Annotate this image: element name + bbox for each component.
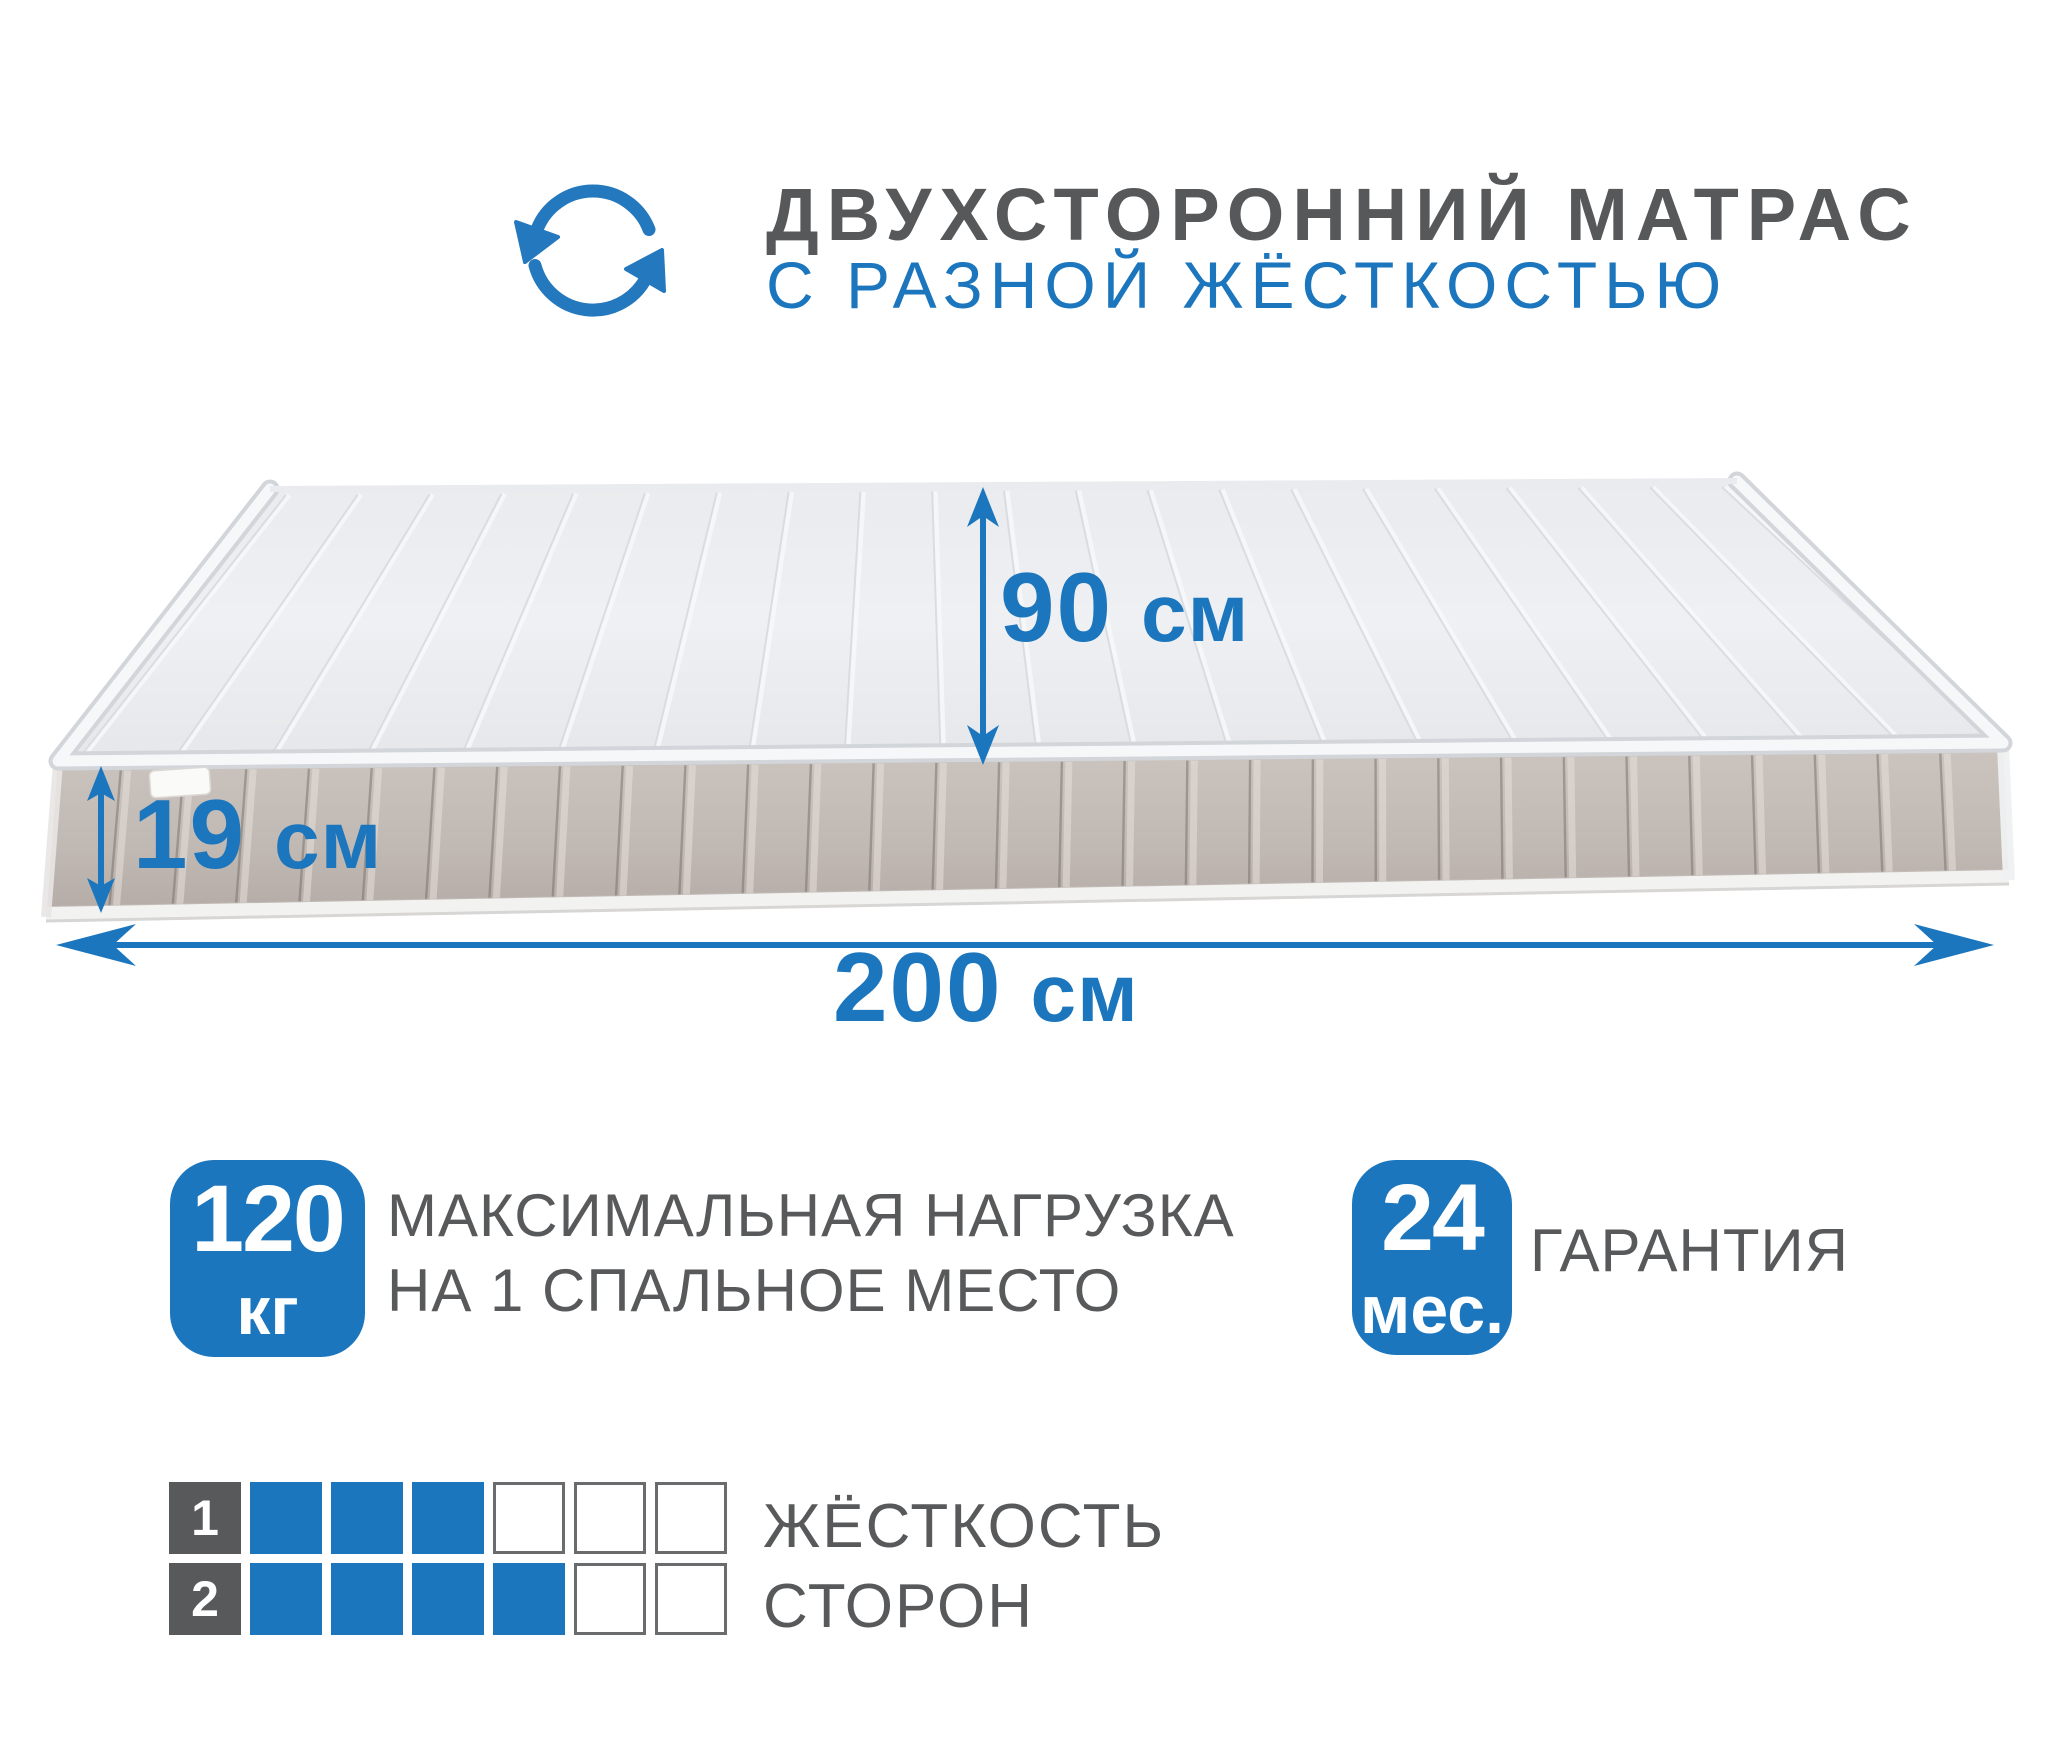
- firmness-side-number: 2: [169, 1563, 241, 1635]
- firmness-cells: [250, 1482, 727, 1554]
- length-label: 200 см: [833, 938, 1139, 1036]
- firmness-cell-empty: [655, 1482, 727, 1554]
- width-value: 90: [1000, 558, 1113, 656]
- firmness-cell-filled: [412, 1482, 484, 1554]
- warranty-label: ГАРАНТИЯ: [1530, 1221, 1849, 1281]
- firmness-cell-filled: [250, 1482, 322, 1554]
- firmness-cell-empty: [574, 1563, 646, 1635]
- firmness-cell-filled: [250, 1563, 322, 1635]
- rotate-arrows-icon: [505, 172, 685, 332]
- max-load-value: 120: [191, 1172, 344, 1267]
- firmness-cell-filled: [331, 1563, 403, 1635]
- firmness-cell-empty: [574, 1482, 646, 1554]
- firmness-cell-filled: [331, 1482, 403, 1554]
- firmness-cell-empty: [493, 1482, 565, 1554]
- width-label: 90 см: [1000, 558, 1249, 656]
- height-unit: см: [274, 800, 382, 882]
- firmness-row-side-2: 2: [169, 1563, 727, 1635]
- max-load-description-line2: НА 1 СПАЛЬНОЕ МЕСТО: [387, 1261, 1121, 1321]
- max-load-badge: 120 кг: [170, 1160, 365, 1357]
- length-value: 200: [833, 938, 1003, 1036]
- firmness-cell-empty: [655, 1563, 727, 1635]
- firmness-row-side-1: 1: [169, 1482, 727, 1554]
- firmness-label-line2: СТОРОН: [763, 1576, 1034, 1638]
- length-unit: см: [1031, 953, 1139, 1035]
- mattress-infographic: ДВУХСТОРОННИЙ МАТРАС С РАЗНОЙ ЖЁСТКОСТЬЮ…: [0, 0, 2048, 1757]
- firmness-cell-filled: [412, 1563, 484, 1635]
- max-load-unit: кг: [236, 1277, 298, 1345]
- firmness-cells: [250, 1563, 727, 1635]
- height-value: 19: [133, 785, 246, 883]
- warranty-unit: мес.: [1360, 1276, 1504, 1344]
- warranty-value: 24: [1381, 1171, 1483, 1266]
- width-unit: см: [1141, 573, 1249, 655]
- page-subtitle: С РАЗНОЙ ЖЁСТКОСТЬЮ: [766, 252, 1728, 318]
- firmness-cell-filled: [493, 1563, 565, 1635]
- mattress-right-corner-piping: [2003, 746, 2009, 880]
- height-label: 19 см: [133, 785, 382, 883]
- max-load-description-line1: МАКСИМАЛЬНАЯ НАГРУЗКА: [387, 1186, 1235, 1246]
- warranty-badge: 24 мес.: [1352, 1160, 1512, 1355]
- firmness-side-number: 1: [169, 1482, 241, 1554]
- firmness-label-line1: ЖЁСТКОСТЬ: [763, 1496, 1165, 1558]
- page-title: ДВУХСТОРОННИЙ МАТРАС: [766, 178, 1919, 252]
